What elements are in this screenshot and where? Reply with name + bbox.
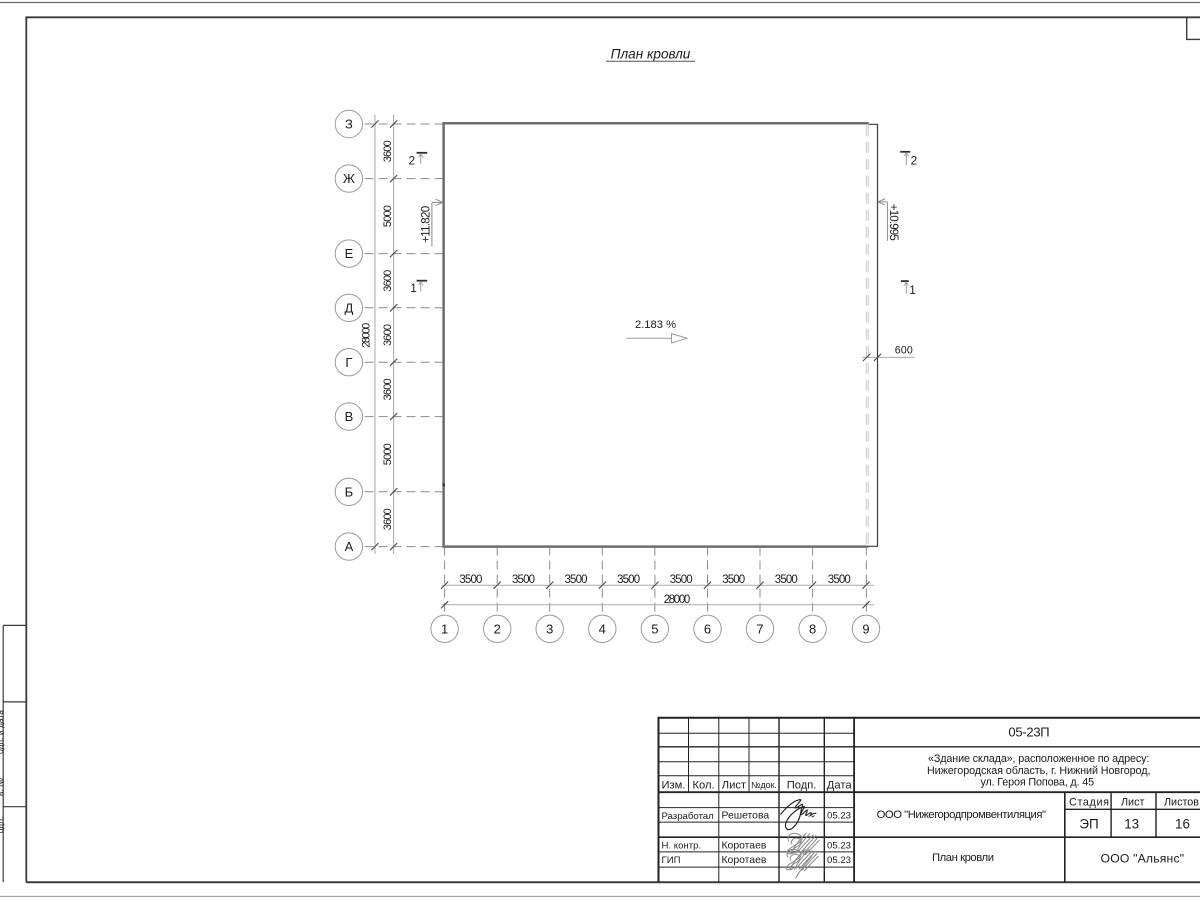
- svg-text:3500: 3500: [512, 574, 535, 586]
- svg-text:3500: 3500: [670, 574, 693, 586]
- svg-text:7: 7: [756, 621, 763, 636]
- svg-text:2: 2: [409, 153, 416, 167]
- svg-text:3600: 3600: [382, 378, 394, 400]
- svg-text:8: 8: [809, 621, 816, 636]
- svg-text:3600: 3600: [382, 140, 394, 162]
- svg-text:2: 2: [911, 154, 918, 168]
- svg-text:План кровли: План кровли: [611, 47, 691, 62]
- svg-text:ул. Героя Попова, д. 45: ул. Героя Попова, д. 45: [980, 776, 1094, 788]
- svg-text:28000: 28000: [664, 594, 691, 606]
- svg-text:ООО "Нижегородпромвентиляция": ООО "Нижегородпромвентиляция": [877, 809, 1046, 821]
- svg-text:Листов: Листов: [1164, 796, 1199, 808]
- svg-text:3500: 3500: [775, 574, 798, 586]
- svg-text:Подп.: Подп.: [787, 779, 817, 791]
- svg-text:13: 13: [1124, 817, 1139, 832]
- svg-text:2.183 %: 2.183 %: [635, 319, 676, 331]
- svg-text:Е: Е: [345, 246, 354, 261]
- svg-text:З: З: [345, 117, 353, 132]
- svg-text:05.23: 05.23: [827, 840, 851, 851]
- svg-text:3500: 3500: [617, 574, 640, 586]
- svg-text:Б: Б: [345, 484, 354, 499]
- svg-text:5000: 5000: [382, 443, 394, 465]
- svg-text:одп. и дата: одп. и дата: [0, 710, 5, 754]
- svg-text:600: 600: [895, 345, 913, 357]
- svg-text:Решетова: Решетова: [722, 811, 770, 822]
- svg-text:3500: 3500: [722, 574, 745, 586]
- svg-text:Лист: Лист: [1121, 796, 1145, 808]
- svg-text:1: 1: [909, 283, 916, 297]
- svg-text:А: А: [345, 539, 354, 554]
- svg-text:05.23: 05.23: [827, 855, 851, 866]
- svg-text:4: 4: [599, 621, 606, 636]
- svg-text:Г: Г: [345, 355, 352, 370]
- svg-text:+11.820: +11.820: [420, 206, 433, 243]
- svg-text:3600: 3600: [382, 508, 394, 530]
- svg-text:28000: 28000: [360, 323, 372, 348]
- svg-text:Дата: Дата: [827, 779, 853, 791]
- svg-text:В: В: [345, 409, 354, 424]
- svg-text:Д: Д: [344, 300, 353, 315]
- svg-text:3: 3: [546, 621, 553, 636]
- svg-text:05.23: 05.23: [827, 811, 851, 822]
- svg-text:№док.: №док.: [751, 780, 777, 790]
- svg-text:ЭП: ЭП: [1079, 817, 1098, 832]
- svg-text:1: 1: [410, 281, 417, 295]
- svg-text:3600: 3600: [382, 270, 394, 292]
- svg-text:Н. контр.: Н. контр.: [662, 841, 702, 852]
- svg-text:Лист: Лист: [722, 779, 746, 791]
- svg-text:ГИП: ГИП: [662, 855, 681, 866]
- svg-text:Ж: Ж: [343, 171, 355, 186]
- svg-text:9: 9: [862, 621, 869, 636]
- svg-text:План кровли: План кровли: [932, 852, 994, 864]
- svg-text:Кол.: Кол.: [693, 779, 715, 791]
- svg-text:Изм.: Изм.: [662, 779, 686, 791]
- svg-text:3500: 3500: [828, 574, 851, 586]
- svg-text:одл.: одл.: [0, 817, 5, 834]
- svg-text:3500: 3500: [565, 574, 588, 586]
- svg-text:Нижегородская область, г. Нижн: Нижегородская область, г. Нижний Новгоро…: [927, 765, 1151, 777]
- svg-text:05-23П: 05-23П: [1008, 725, 1049, 740]
- svg-text:ООО "Альянс": ООО "Альянс": [1101, 852, 1185, 866]
- svg-text:Стадия: Стадия: [1069, 796, 1109, 808]
- svg-text:2: 2: [494, 621, 501, 636]
- svg-text:Разработал: Разработал: [662, 811, 714, 822]
- svg-text:Коротаев: Коротаев: [722, 840, 767, 851]
- svg-text:5: 5: [651, 621, 658, 636]
- svg-text:в. №: в. №: [0, 778, 5, 796]
- svg-text:Коротаев: Коротаев: [722, 855, 767, 866]
- svg-text:+10.995: +10.995: [887, 204, 900, 241]
- svg-text:3600: 3600: [382, 324, 394, 346]
- svg-text:16: 16: [1175, 817, 1190, 832]
- svg-text:5000: 5000: [382, 205, 394, 227]
- svg-text:1: 1: [441, 621, 448, 636]
- svg-text:«Здание склада», расположенное: «Здание склада», расположенное по адресу…: [928, 753, 1149, 765]
- svg-text:3500: 3500: [459, 574, 482, 586]
- svg-text:6: 6: [704, 621, 711, 636]
